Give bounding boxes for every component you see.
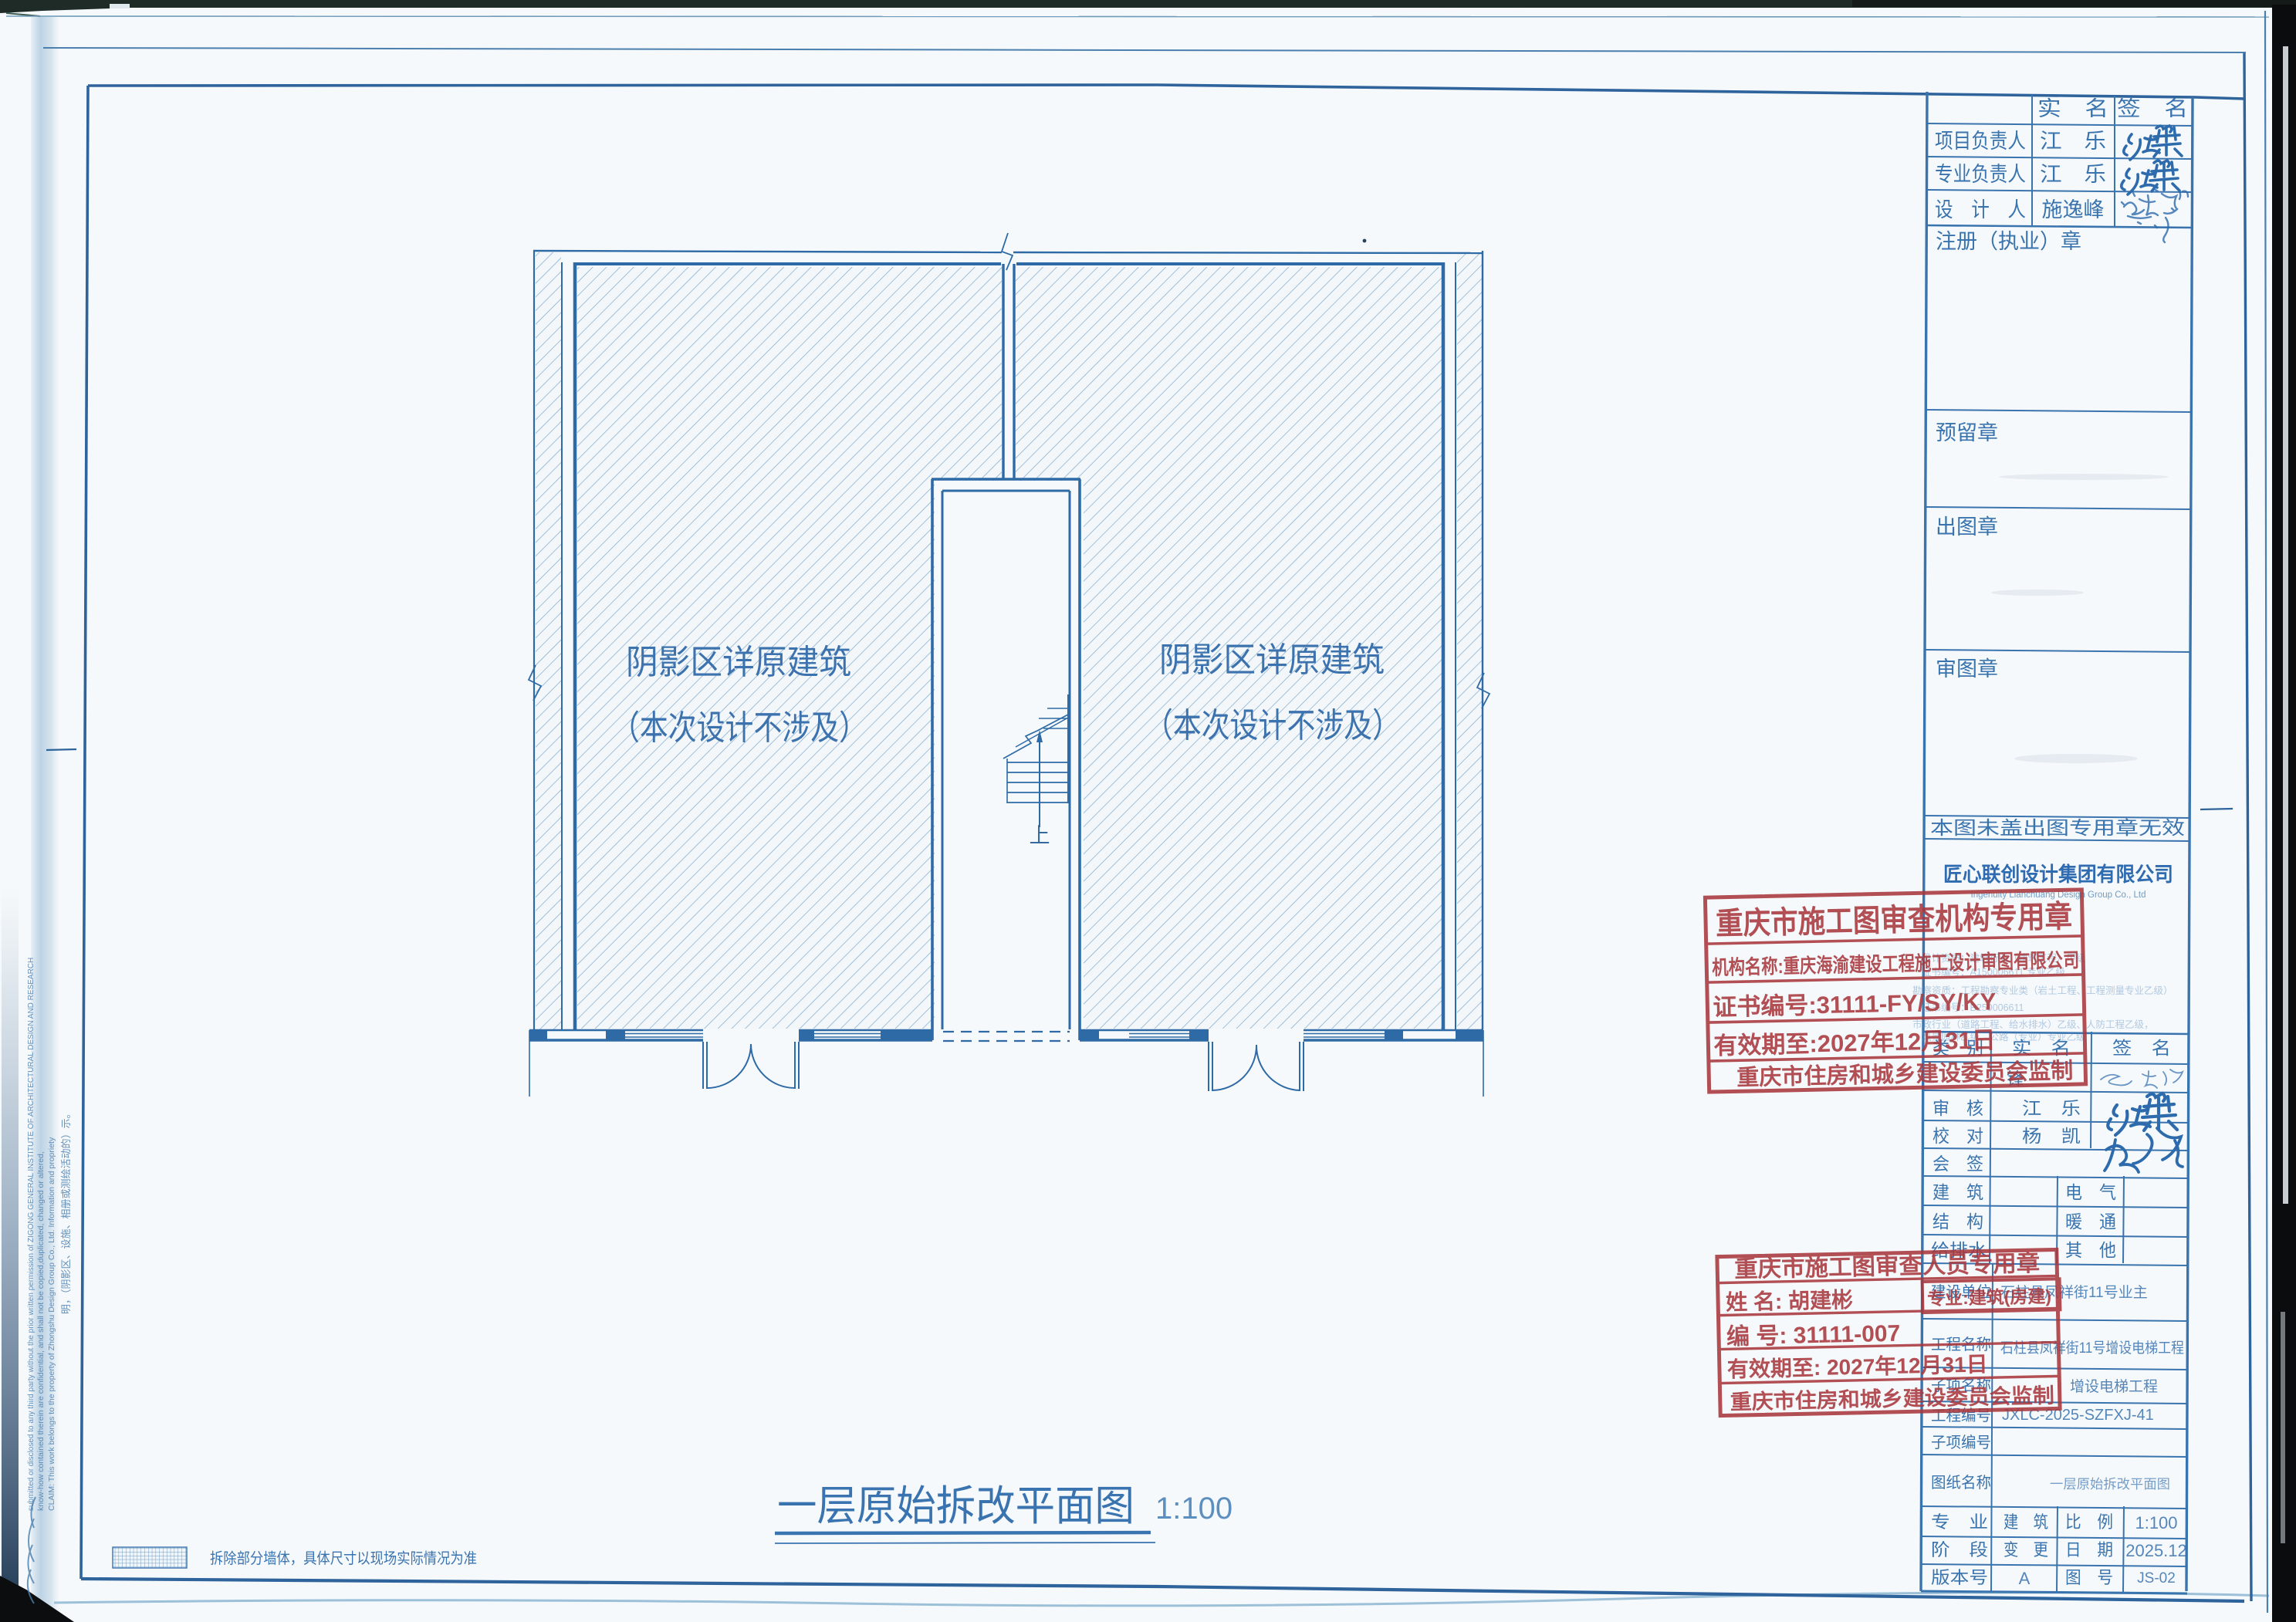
svg-text:（本次设计不涉及）: （本次设计不涉及）	[1145, 707, 1401, 745]
svg-text:比 例: 比 例	[2065, 1512, 2113, 1532]
svg-text:2025.12: 2025.12	[2125, 1541, 2187, 1560]
svg-text:一层原始拆改平面图: 一层原始拆改平面图	[2050, 1477, 2170, 1492]
svg-text:出图章: 出图章	[1936, 515, 1998, 539]
svg-text:本图未盖出图专用章无效: 本图未盖出图专用章无效	[1930, 818, 2185, 839]
svg-text:1:100: 1:100	[2135, 1513, 2177, 1532]
svg-text:江 乐: 江 乐	[2040, 163, 2106, 186]
svg-text:子项编号: 子项编号	[1931, 1434, 1991, 1451]
svg-text:增设电梯工程: 增设电梯工程	[2070, 1378, 2158, 1395]
svg-text:江 乐: 江 乐	[2022, 1098, 2081, 1118]
svg-text:电 气: 电 气	[2065, 1182, 2116, 1202]
svg-text:明，（阴影区、设施、相册或测绘活动的）示。: 明，（阴影区、设施、相册或测绘活动的）示。	[60, 1108, 72, 1314]
svg-text:图 号: 图 号	[2065, 1568, 2113, 1587]
svg-text:实 名: 实 名	[2037, 97, 2108, 120]
svg-text:预留章: 预留章	[1936, 421, 1998, 444]
svg-text:建 筑: 建 筑	[2004, 1512, 2048, 1532]
svg-text:暖 通: 暖 通	[2065, 1211, 2116, 1232]
svg-text:其 他: 其 他	[2065, 1240, 2116, 1260]
svg-text:匠心联创设计集团有限公司: 匠心联创设计集团有限公司	[1943, 863, 2173, 886]
svg-text:建 筑: 建 筑	[1932, 1182, 1983, 1202]
svg-text:审 核: 审 核	[1932, 1098, 1983, 1118]
svg-text:1:100: 1:100	[1155, 1492, 1233, 1526]
svg-text:编 号: 31111-007: 编 号: 31111-007	[1726, 1320, 1901, 1350]
svg-text:submitted or disclosed to any: submitted or disclosed to any third part…	[27, 958, 36, 1511]
svg-text:姓 名: 胡建彬: 姓 名: 胡建彬	[1726, 1288, 1854, 1314]
svg-text:设 计 人: 设 计 人	[1935, 198, 2026, 221]
svg-text:签 名: 签 名	[2112, 1038, 2171, 1058]
svg-text:项目负责人: 项目负责人	[1935, 130, 2026, 153]
svg-text:图纸名称: 图纸名称	[1931, 1474, 1991, 1492]
svg-text:拆除部分墙体，具体尺寸以现场实际情况为准: 拆除部分墙体，具体尺寸以现场实际情况为准	[210, 1550, 477, 1567]
svg-text:注册（执业）章: 注册（执业）章	[1936, 230, 2081, 253]
svg-text:日 期: 日 期	[2065, 1540, 2113, 1559]
svg-text:专 业: 专 业	[1931, 1512, 1988, 1532]
svg-text:审图章: 审图章	[1936, 657, 1998, 681]
svg-text:（本次设计不涉及）: （本次设计不涉及）	[611, 709, 867, 747]
svg-text:会 签: 会 签	[1932, 1154, 1983, 1174]
svg-text:A: A	[2019, 1569, 2031, 1588]
svg-text:JS-02: JS-02	[2137, 1570, 2176, 1587]
svg-text:江 乐: 江 乐	[2040, 130, 2106, 153]
svg-text:上: 上	[1030, 824, 1050, 847]
svg-text:施逸峰: 施逸峰	[2042, 198, 2105, 221]
svg-text:杨 凯: 杨 凯	[2022, 1126, 2081, 1146]
svg-text:签 名: 签 名	[2117, 97, 2188, 120]
svg-text:变 更: 变 更	[2004, 1540, 2048, 1559]
svg-text:know-how contained therein are: know-how contained therein are confident…	[36, 1151, 46, 1511]
svg-text:结 构: 结 构	[1932, 1211, 1983, 1232]
svg-text:阴影区详原建筑: 阴影区详原建筑	[1159, 641, 1385, 679]
svg-text:阶 段: 阶 段	[1931, 1540, 1988, 1559]
svg-text:一层原始拆改平面图: 一层原始拆改平面图	[777, 1483, 1134, 1529]
svg-text:专业:建筑(房建): 专业:建筑(房建)	[1927, 1286, 2051, 1309]
svg-text:阴影区详原建筑: 阴影区详原建筑	[626, 644, 851, 681]
svg-text:校 对: 校 对	[1932, 1126, 1983, 1146]
svg-text:版本号: 版本号	[1931, 1568, 1988, 1587]
svg-text:CLAIM: This work belongs to th: CLAIM: This work belongs to the property…	[47, 1137, 56, 1511]
svg-text:专业负责人: 专业负责人	[1935, 163, 2026, 186]
